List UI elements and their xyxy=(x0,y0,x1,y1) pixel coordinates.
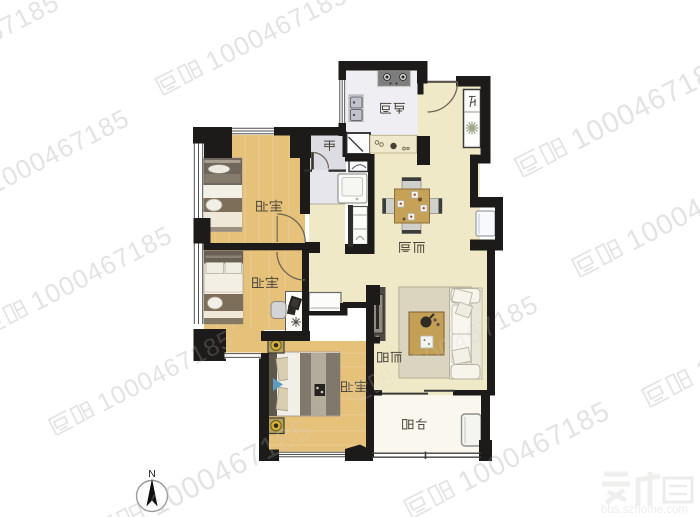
svg-text:1000467185: 1000467185 xyxy=(93,325,239,418)
svg-text:1000467185: 1000467185 xyxy=(621,154,700,257)
svg-text:1000467185: 1000467185 xyxy=(0,0,64,84)
svg-text:1000467185: 1000467185 xyxy=(201,0,352,77)
svg-text:1000467185: 1000467185 xyxy=(26,220,177,317)
svg-text:bbs.szhome.com: bbs.szhome.com xyxy=(601,504,688,516)
svg-text:N: N xyxy=(148,468,156,480)
svg-text:1000467185: 1000467185 xyxy=(566,50,700,156)
svg-text:1000467185: 1000467185 xyxy=(691,284,700,387)
svg-text:1000467185: 1000467185 xyxy=(144,413,317,517)
svg-text:1000467185: 1000467185 xyxy=(0,103,134,200)
